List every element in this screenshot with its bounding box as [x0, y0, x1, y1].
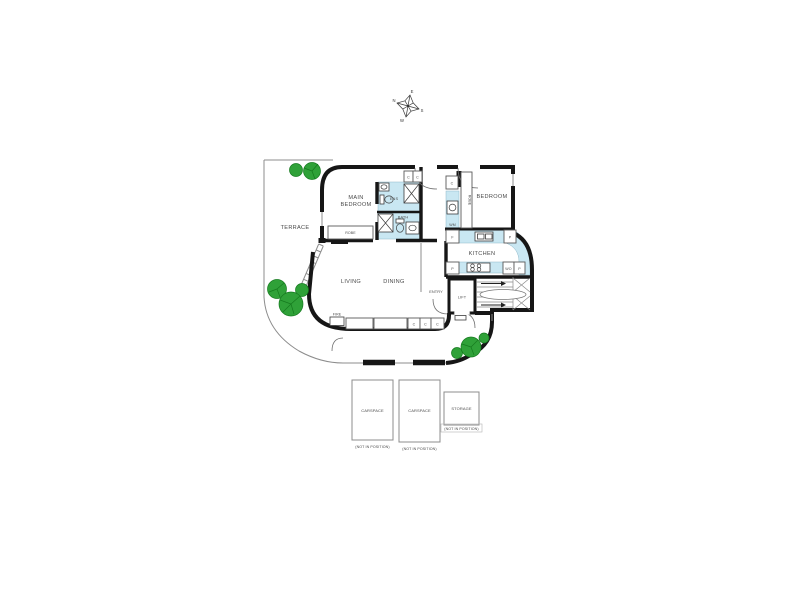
room-label-main-bedroom-1: MAIN — [348, 195, 363, 201]
carspace-2-label: CARSPACE — [408, 408, 431, 413]
hall-cupboards: C C — [404, 171, 422, 182]
cupboard-label: C — [413, 322, 416, 326]
carspace-2-note: (NOT IN POSITION) — [402, 447, 436, 451]
robe-label: ROBE — [468, 195, 472, 206]
cupboard-label: C — [416, 176, 419, 180]
compass-rose: N E S W — [392, 89, 423, 123]
cupboard-label: C — [436, 322, 439, 326]
floor-plan-page: N E S W — [0, 0, 800, 600]
bedroom-robe: ROBE — [461, 172, 472, 228]
lift — [449, 279, 475, 320]
room-label-main-bedroom-2: BEDROOM — [340, 202, 371, 208]
room-label-entry: ENTRY — [429, 289, 443, 294]
washing-machine-label: WM — [449, 223, 456, 227]
storage-label: STORAGE — [451, 406, 471, 411]
floor-plan-drawing: N E S W — [0, 0, 800, 600]
tree — [452, 348, 463, 359]
cupboard-label: C — [424, 322, 427, 326]
room-label-bath: BATH — [398, 215, 409, 220]
terrace-boundary — [264, 160, 343, 363]
room-label-terrace: TERRACE — [281, 225, 310, 231]
compass-north-label: N — [392, 98, 395, 103]
living-joinery: C C C FIRE — [330, 313, 444, 329]
carspace-1-label: CARSPACE — [361, 408, 384, 413]
room-label-ens: ENS — [390, 196, 399, 201]
parking-area: CARSPACE (NOT IN POSITION) CARSPACE (NOT… — [352, 380, 482, 451]
door-terrace-arc — [332, 338, 343, 351]
stairs — [477, 277, 530, 310]
tree — [290, 164, 303, 177]
room-label-dining: DINING — [383, 279, 404, 285]
fireplace-label: FIRE — [333, 313, 342, 317]
compass-west-label: W — [400, 118, 404, 123]
cupboard-label: C — [451, 181, 454, 185]
carspace-1-note: (NOT IN POSITION) — [355, 445, 389, 449]
compass-east-label: E — [411, 89, 414, 94]
room-label-lift: LIFT — [458, 295, 467, 300]
room-label-bedroom: BEDROOM — [476, 194, 507, 200]
robe-label: ROBE — [345, 231, 356, 235]
door-entry-arc — [433, 299, 448, 314]
room-label-living: LIVING — [341, 279, 361, 285]
main-bedroom-robe: ROBE — [328, 226, 373, 239]
wall-oven-label: WO — [505, 267, 511, 271]
compass-south-label: S — [421, 108, 424, 113]
room-label-kitchen: KITCHEN — [469, 251, 496, 257]
storage-note: (NOT IN POSITION) — [444, 427, 478, 431]
cupboard-label: C — [407, 176, 410, 180]
tree — [479, 333, 489, 343]
